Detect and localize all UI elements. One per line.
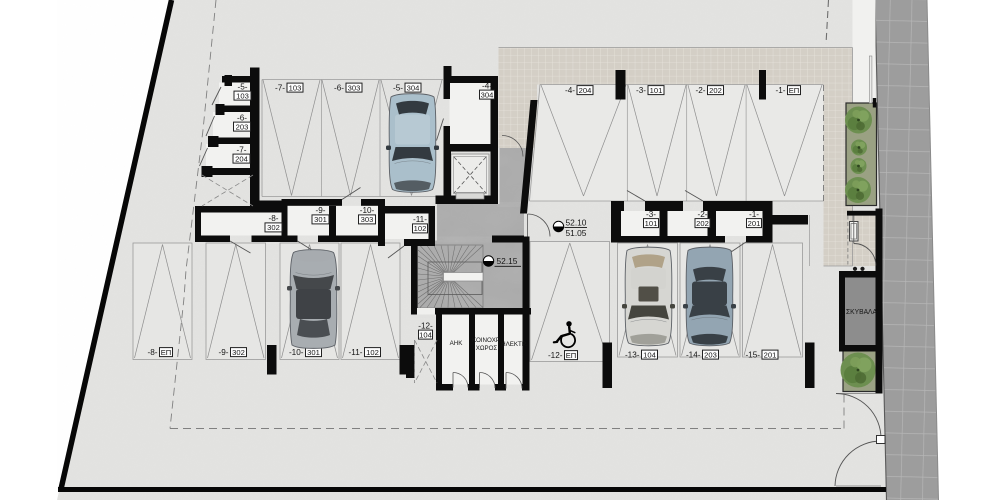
svg-text:-7-: -7- [275, 83, 285, 92]
svg-text:-10-: -10- [360, 206, 375, 215]
svg-text:-10-: -10- [289, 348, 304, 357]
svg-text:201: 201 [748, 219, 761, 228]
svg-text:51.05: 51.05 [566, 228, 587, 238]
svg-text:52.15: 52.15 [497, 256, 518, 266]
svg-text:204: 204 [579, 86, 592, 95]
svg-text:104: 104 [643, 350, 656, 359]
svg-text:202: 202 [709, 86, 722, 95]
svg-text:-4-: -4- [482, 81, 492, 90]
svg-text:ΚΟΙΝΟΧΡ.: ΚΟΙΝΟΧΡ. [472, 337, 501, 344]
svg-text:ΗΛΕΚΤΡ.: ΗΛΕΚΤΡ. [501, 341, 527, 348]
svg-text:302: 302 [267, 223, 280, 232]
svg-text:301: 301 [307, 348, 320, 357]
svg-text:-5-: -5- [237, 82, 247, 91]
svg-text:-3-: -3- [646, 210, 656, 219]
svg-text:-8-: -8- [147, 348, 157, 357]
svg-text:-6-: -6- [334, 83, 344, 92]
svg-text:-13-: -13- [625, 350, 640, 359]
svg-text:-12-: -12- [548, 351, 563, 360]
svg-text:101: 101 [645, 219, 658, 228]
svg-text:102: 102 [414, 224, 427, 233]
svg-text:ΑΗΚ: ΑΗΚ [450, 340, 464, 347]
svg-text:204: 204 [235, 154, 248, 163]
svg-text:104: 104 [419, 330, 432, 339]
svg-text:202: 202 [696, 219, 709, 228]
svg-text:304: 304 [481, 90, 494, 99]
svg-text:-1-: -1- [775, 86, 785, 95]
svg-text:-15-: -15- [745, 350, 760, 359]
svg-text:303: 303 [348, 83, 361, 92]
svg-text:ΕΠ: ΕΠ [789, 86, 800, 95]
svg-text:-6-: -6- [237, 113, 247, 122]
svg-text:103: 103 [289, 83, 302, 92]
svg-text:-3-: -3- [636, 86, 646, 95]
svg-text:-14-: -14- [686, 350, 701, 359]
svg-text:-1-: -1- [749, 210, 759, 219]
svg-text:52.10: 52.10 [566, 218, 587, 228]
svg-text:101: 101 [650, 86, 663, 95]
svg-text:-11-: -11- [349, 348, 363, 357]
svg-text:-5-: -5- [393, 83, 403, 92]
svg-text:-2-: -2- [695, 86, 705, 95]
svg-text:-2-: -2- [697, 210, 707, 219]
svg-text:302: 302 [232, 348, 245, 357]
svg-text:ΧΩΡΟΣ: ΧΩΡΟΣ [476, 345, 498, 352]
svg-text:201: 201 [764, 350, 777, 359]
svg-text:ΕΠ: ΕΠ [566, 351, 577, 360]
svg-text:203: 203 [236, 122, 249, 131]
svg-text:303: 303 [361, 215, 374, 224]
svg-text:-4-: -4- [565, 86, 575, 95]
svg-text:-9-: -9- [315, 206, 325, 215]
svg-text:102: 102 [366, 348, 379, 357]
svg-text:-12-: -12- [418, 321, 433, 330]
svg-text:-7-: -7- [236, 145, 246, 154]
svg-text:-11-: -11- [413, 215, 427, 224]
svg-text:ΣΚΥΒΑΛΑ: ΣΚΥΒΑΛΑ [846, 309, 877, 316]
svg-text:103: 103 [236, 91, 249, 100]
svg-text:-9-: -9- [218, 348, 228, 357]
svg-text:-8-: -8- [268, 214, 278, 223]
svg-text:ΕΠ: ΕΠ [161, 348, 172, 357]
svg-text:203: 203 [704, 350, 717, 359]
svg-text:301: 301 [314, 215, 327, 224]
svg-text:304: 304 [407, 83, 420, 92]
